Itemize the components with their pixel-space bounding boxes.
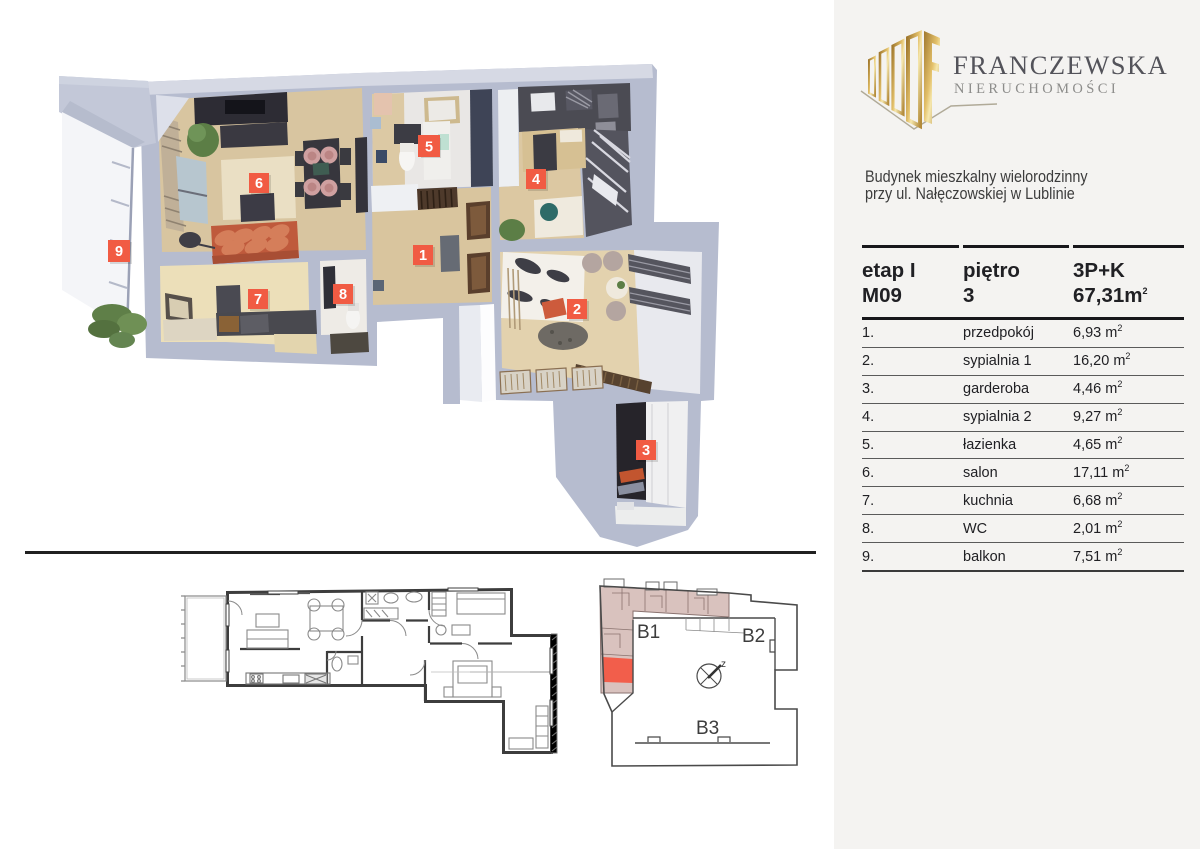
svg-text:7: 7	[254, 292, 262, 308]
svg-text:8: 8	[339, 287, 347, 303]
svg-text:9: 9	[115, 244, 123, 260]
svg-text:B1: B1	[637, 622, 660, 643]
svg-text:3: 3	[642, 443, 650, 459]
svg-text:4: 4	[532, 172, 540, 188]
svg-text:5: 5	[425, 140, 433, 156]
svg-text:NIERUCHOMOŚCI: NIERUCHOMOŚCI	[954, 80, 1119, 97]
svg-text:B3: B3	[696, 718, 719, 739]
svg-text:B2: B2	[742, 626, 765, 647]
svg-text:6: 6	[255, 176, 263, 192]
svg-text:1: 1	[419, 248, 427, 264]
svg-text:2: 2	[573, 302, 581, 318]
svg-text:FRANCZEWSKA: FRANCZEWSKA	[953, 50, 1168, 80]
svg-text:z: z	[721, 659, 726, 670]
